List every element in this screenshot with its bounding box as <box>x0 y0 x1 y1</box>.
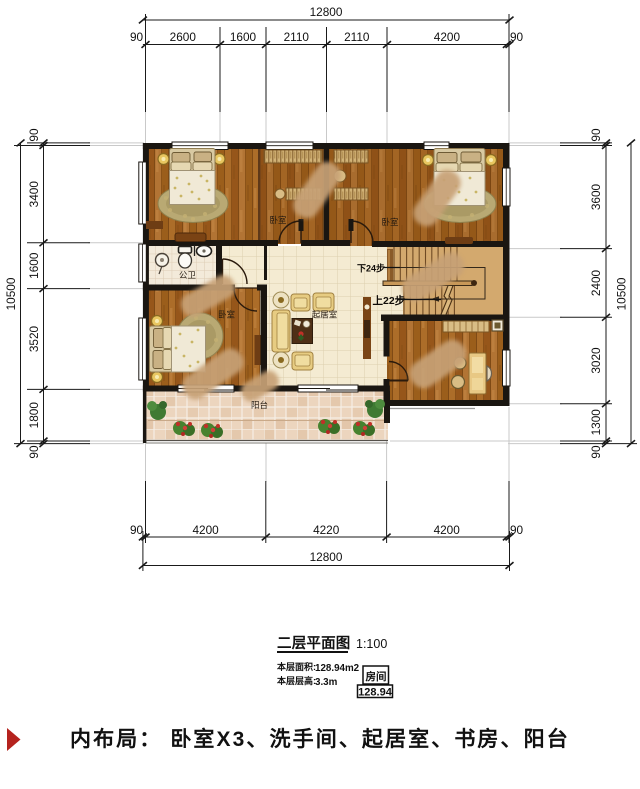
svg-text:2600: 2600 <box>170 30 197 44</box>
svg-text:卧室: 卧室 <box>381 217 399 227</box>
svg-text:起居室: 起居室 <box>312 310 338 320</box>
svg-text:90: 90 <box>130 523 144 537</box>
svg-text:3520: 3520 <box>27 325 41 352</box>
svg-text:上22步: 上22步 <box>373 294 406 307</box>
svg-text:3.3m: 3.3m <box>315 677 338 688</box>
svg-text:128.94m2: 128.94m2 <box>315 663 360 674</box>
svg-text:公卫: 公卫 <box>179 270 197 280</box>
svg-text:90: 90 <box>510 523 524 537</box>
svg-text:4200: 4200 <box>192 523 219 537</box>
svg-text:阳台: 阳台 <box>251 400 268 410</box>
svg-text:1600: 1600 <box>27 252 41 279</box>
svg-text:10500: 10500 <box>4 277 18 310</box>
svg-text:卧室: 卧室 <box>269 215 287 225</box>
svg-text:本层面积:: 本层面积: <box>277 661 316 672</box>
svg-text:90: 90 <box>589 445 603 459</box>
svg-text:12800: 12800 <box>310 5 343 19</box>
svg-text:90: 90 <box>27 445 41 459</box>
svg-text:下24步: 下24步 <box>357 263 385 274</box>
svg-text:内布局： 卧室X3、洗手间、起居室、书房、阳台: 内布局： 卧室X3、洗手间、起居室、书房、阳台 <box>70 727 570 751</box>
svg-text:1300: 1300 <box>589 409 603 436</box>
svg-text:12800: 12800 <box>310 550 343 564</box>
svg-text:10500: 10500 <box>615 277 629 310</box>
svg-text:90: 90 <box>27 128 41 142</box>
svg-text:二层平面图: 二层平面图 <box>277 635 351 652</box>
svg-text:1800: 1800 <box>27 402 41 429</box>
svg-text:3400: 3400 <box>27 181 41 208</box>
svg-text:4200: 4200 <box>434 30 461 44</box>
svg-text:3020: 3020 <box>589 347 603 374</box>
svg-text:2400: 2400 <box>589 269 603 296</box>
svg-text:90: 90 <box>130 30 144 44</box>
svg-text:2110: 2110 <box>284 30 310 44</box>
svg-text:1:100: 1:100 <box>356 637 387 651</box>
svg-text:1600: 1600 <box>230 30 257 44</box>
svg-text:4200: 4200 <box>434 523 461 537</box>
svg-text:4220: 4220 <box>313 523 340 537</box>
svg-text:90: 90 <box>589 128 603 142</box>
svg-text:128.94: 128.94 <box>358 687 393 699</box>
svg-text:3600: 3600 <box>589 183 603 210</box>
svg-text:90: 90 <box>510 30 524 44</box>
svg-text:卧室: 卧室 <box>218 310 236 320</box>
svg-text:本层层高:: 本层层高: <box>277 675 316 686</box>
svg-text:房间: 房间 <box>366 670 387 683</box>
svg-text:2110: 2110 <box>344 30 370 44</box>
